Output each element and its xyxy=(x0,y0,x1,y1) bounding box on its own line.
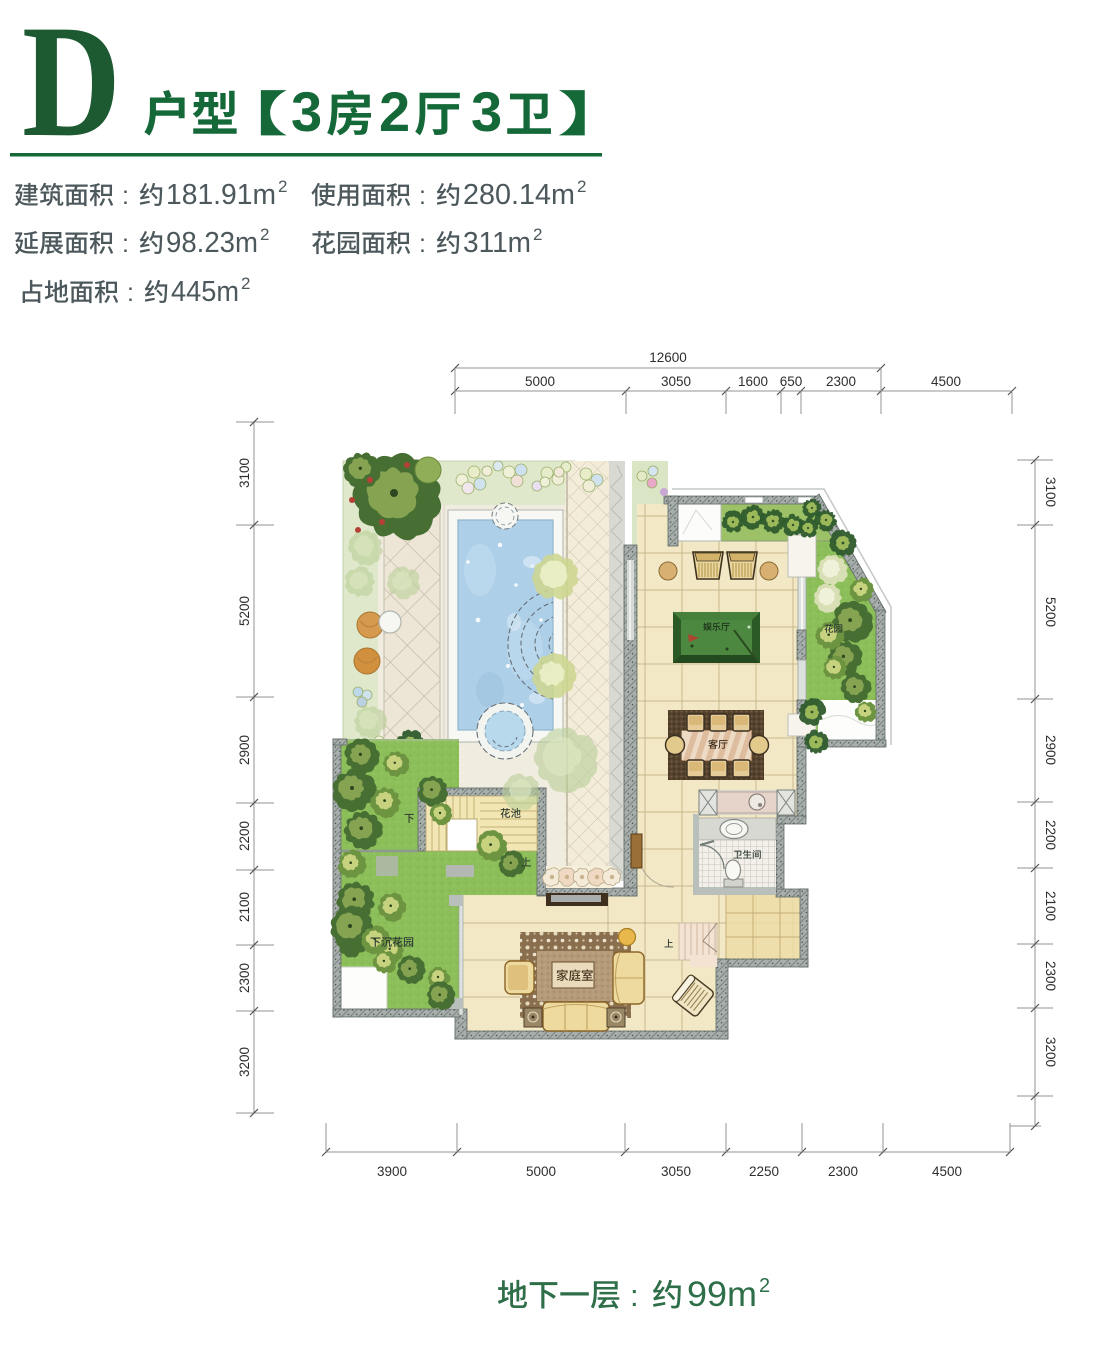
svg-text:2: 2 xyxy=(241,274,250,293)
svg-text::: : xyxy=(419,182,426,210)
svg-text:2300: 2300 xyxy=(828,1164,858,1179)
svg-text:2900: 2900 xyxy=(1043,735,1058,765)
svg-text::: : xyxy=(122,182,129,210)
svg-text::: : xyxy=(630,1278,639,1313)
svg-text::: : xyxy=(122,230,129,258)
svg-text:2: 2 xyxy=(379,80,410,143)
svg-text:99m: 99m xyxy=(687,1275,757,1314)
svg-text:3: 3 xyxy=(291,80,322,143)
svg-text:2: 2 xyxy=(278,177,287,196)
svg-text:2300: 2300 xyxy=(237,963,252,993)
svg-text:2900: 2900 xyxy=(237,735,252,765)
svg-text:5000: 5000 xyxy=(526,1164,556,1179)
svg-text:2250: 2250 xyxy=(749,1164,779,1179)
svg-text:445m: 445m xyxy=(171,276,239,308)
svg-text:D: D xyxy=(22,0,121,171)
svg-text:3050: 3050 xyxy=(661,1164,691,1179)
svg-text:5000: 5000 xyxy=(525,374,555,389)
svg-text:3: 3 xyxy=(471,80,502,143)
svg-text:2200: 2200 xyxy=(1043,820,1058,850)
svg-text:2300: 2300 xyxy=(826,374,856,389)
svg-text:98.23m: 98.23m xyxy=(166,227,258,259)
svg-text:3900: 3900 xyxy=(377,1164,407,1179)
svg-text:181.91m: 181.91m xyxy=(166,179,276,211)
svg-text:650: 650 xyxy=(780,374,803,389)
svg-text:311m: 311m xyxy=(463,227,531,259)
svg-text:4500: 4500 xyxy=(932,1164,962,1179)
svg-text:2200: 2200 xyxy=(237,821,252,851)
svg-text:2: 2 xyxy=(260,225,269,244)
svg-text:2: 2 xyxy=(533,225,542,244)
svg-text:5200: 5200 xyxy=(237,596,252,626)
svg-text:12600: 12600 xyxy=(649,350,687,365)
svg-text:3100: 3100 xyxy=(237,458,252,488)
svg-text:1600: 1600 xyxy=(738,374,768,389)
svg-text:2: 2 xyxy=(759,1275,770,1297)
svg-text:2100: 2100 xyxy=(1043,891,1058,921)
svg-text:3200: 3200 xyxy=(1043,1037,1058,1067)
svg-text:280.14m: 280.14m xyxy=(463,179,575,211)
svg-text:3050: 3050 xyxy=(661,374,691,389)
svg-text:5200: 5200 xyxy=(1043,597,1058,627)
svg-text:2100: 2100 xyxy=(237,892,252,922)
svg-text:3200: 3200 xyxy=(237,1047,252,1077)
svg-text::: : xyxy=(127,279,134,307)
svg-text:2300: 2300 xyxy=(1043,961,1058,991)
svg-text:3100: 3100 xyxy=(1043,477,1058,507)
svg-text::: : xyxy=(419,230,426,258)
svg-text:2: 2 xyxy=(577,177,586,196)
svg-text:4500: 4500 xyxy=(931,374,961,389)
